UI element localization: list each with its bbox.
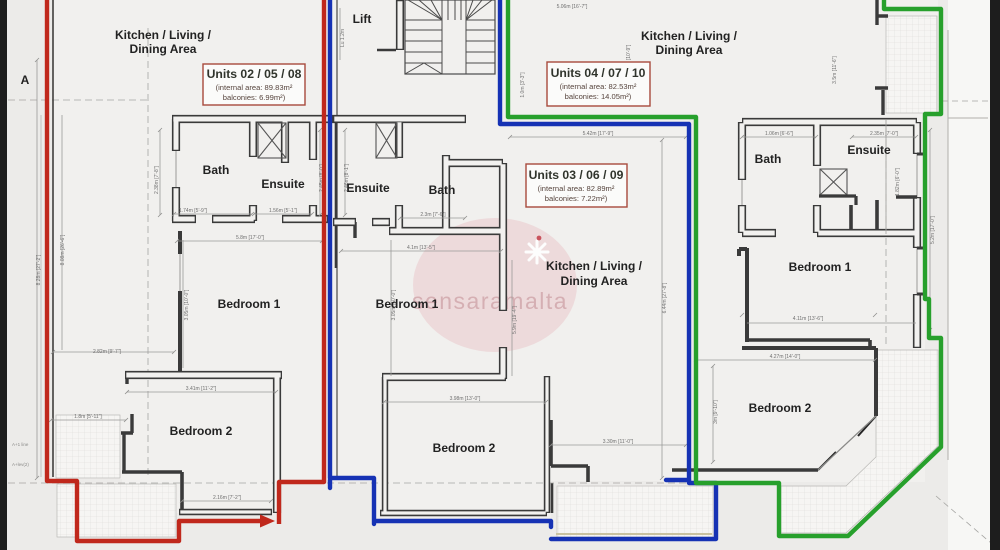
svg-text:5.06m [16'-7"]: 5.06m [16'-7"] bbox=[557, 4, 588, 10]
svg-text:2.16m [7'-2"]: 2.16m [7'-2"] bbox=[213, 495, 242, 501]
svg-text:Bedroom 1: Bedroom 1 bbox=[376, 297, 439, 311]
svg-text:8.28m [27'-2"]: 8.28m [27'-2"] bbox=[36, 254, 42, 285]
svg-text:5.2m [17'-0"]: 5.2m [17'-0"] bbox=[930, 215, 936, 244]
svg-text:2.35m [7'-0"]: 2.35m [7'-0"] bbox=[870, 131, 899, 137]
svg-text:3m [9'-10"]: 3m [9'-10"] bbox=[713, 399, 719, 423]
svg-text:1.56m [5'-1"]: 1.56m [5'-1"] bbox=[269, 208, 298, 214]
svg-text:2.38m [7'-8"]: 2.38m [7'-8"] bbox=[154, 165, 160, 194]
svg-text:Units 03 / 06 / 09: Units 03 / 06 / 09 bbox=[529, 168, 624, 182]
svg-text:3.98m [13'-0"]: 3.98m [13'-0"] bbox=[450, 396, 481, 402]
svg-text:4.1m [13'-5"]: 4.1m [13'-5"] bbox=[407, 245, 436, 251]
svg-text:A: A bbox=[21, 73, 30, 87]
svg-text:Bath: Bath bbox=[755, 152, 782, 166]
svg-text:Bath: Bath bbox=[429, 183, 456, 197]
svg-text:5.8m [17'-0"]: 5.8m [17'-0"] bbox=[236, 235, 265, 241]
svg-text:1.06m [6'-6"]: 1.06m [6'-6"] bbox=[765, 131, 794, 137]
svg-text:balconies: 7.22m²): balconies: 7.22m²) bbox=[545, 194, 608, 203]
svg-text:1.82m [6'-0"]: 1.82m [6'-0"] bbox=[895, 167, 901, 196]
svg-text:Bedroom 2: Bedroom 2 bbox=[749, 401, 812, 415]
svg-text:3.30m [11'-0"]: 3.30m [11'-0"] bbox=[603, 439, 634, 445]
svg-text:5.42m [17'-9"]: 5.42m [17'-9"] bbox=[583, 131, 614, 137]
svg-text:3.05m [10'-0"]: 3.05m [10'-0"] bbox=[184, 289, 190, 320]
svg-text:4.27m [14'-0"]: 4.27m [14'-0"] bbox=[770, 354, 801, 360]
svg-text:Dining Area: Dining Area bbox=[561, 274, 628, 288]
svg-text:A+lev(2): A+lev(2) bbox=[12, 462, 29, 467]
svg-text:Ensuite: Ensuite bbox=[847, 143, 891, 157]
svg-text:8.08m [26'-6"]: 8.08m [26'-6"] bbox=[60, 234, 66, 265]
svg-text:6.44m [27'-8"]: 6.44m [27'-8"] bbox=[662, 282, 668, 313]
svg-text:Bedroom 1: Bedroom 1 bbox=[789, 260, 852, 274]
svg-text:Kitchen / Living /: Kitchen / Living / bbox=[641, 29, 738, 43]
svg-text:Ensuite: Ensuite bbox=[346, 181, 390, 195]
svg-text:balconies: 14.05m²): balconies: 14.05m²) bbox=[565, 92, 632, 101]
svg-text:2.82m [9'-7"]: 2.82m [9'-7"] bbox=[93, 349, 122, 355]
svg-text:Bedroom 2: Bedroom 2 bbox=[433, 441, 496, 455]
svg-text:Kitchen / Living /: Kitchen / Living / bbox=[115, 28, 212, 42]
svg-text:5.9m [19'-4"]: 5.9m [19'-4"] bbox=[512, 305, 518, 334]
svg-text:Bedroom 1: Bedroom 1 bbox=[218, 297, 281, 311]
svg-text:Dining Area: Dining Area bbox=[656, 43, 723, 57]
svg-text:A+1 line: A+1 line bbox=[12, 442, 29, 447]
svg-text:Lu 1.2m: Lu 1.2m bbox=[340, 29, 346, 47]
svg-text:2.3m [7'-6"]: 2.3m [7'-6"] bbox=[420, 212, 446, 218]
svg-text:4.11m [13'-6"]: 4.11m [13'-6"] bbox=[793, 316, 824, 322]
svg-text:Units 02 / 05 / 08: Units 02 / 05 / 08 bbox=[207, 67, 302, 81]
svg-text:balconies: 6.99m²): balconies: 6.99m²) bbox=[223, 93, 286, 102]
svg-text:1.8m [5'-11"]: 1.8m [5'-11"] bbox=[74, 414, 102, 420]
svg-text:Ensuite: Ensuite bbox=[261, 177, 305, 191]
svg-text:(internal area: 82.89m²: (internal area: 82.89m² bbox=[538, 184, 615, 193]
svg-text:Units 04 / 07 / 10: Units 04 / 07 / 10 bbox=[551, 66, 646, 80]
svg-text:(internal area: 89.83m²: (internal area: 89.83m² bbox=[216, 83, 293, 92]
svg-text:Lift: Lift bbox=[353, 12, 372, 26]
svg-text:3.5m [11'-6"]: 3.5m [11'-6"] bbox=[832, 56, 838, 84]
svg-text:1.74m [5'-9"]: 1.74m [5'-9"] bbox=[179, 208, 208, 214]
svg-text:Bedroom 2: Bedroom 2 bbox=[170, 424, 233, 438]
svg-text:Bath: Bath bbox=[203, 163, 230, 177]
svg-text:1.0m [3'-3"]: 1.0m [3'-3"] bbox=[520, 72, 526, 98]
svg-text:3.41m [11'-2"]: 3.41m [11'-2"] bbox=[186, 386, 217, 392]
svg-text:(internal area: 82.53m²: (internal area: 82.53m² bbox=[560, 82, 637, 91]
svg-text:Kitchen / Living /: Kitchen / Living / bbox=[546, 259, 643, 273]
svg-text:Dining Area: Dining Area bbox=[130, 42, 197, 56]
